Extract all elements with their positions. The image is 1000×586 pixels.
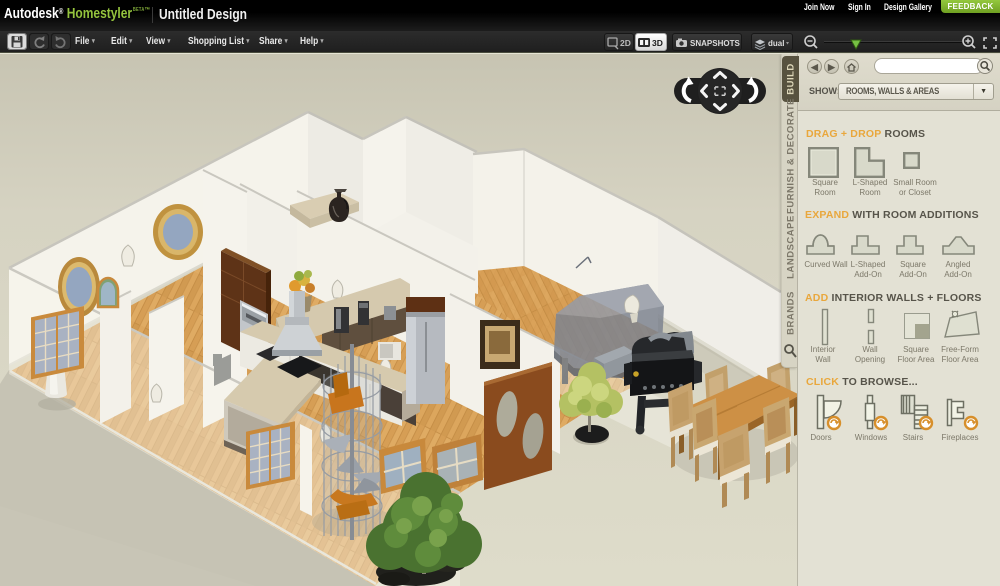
- svg-text:dual: dual: [768, 39, 784, 48]
- svg-text:3D: 3D: [652, 38, 663, 48]
- svg-text:SNAPSHOTS: SNAPSHOTS: [690, 39, 740, 48]
- svg-text:2D: 2D: [620, 38, 631, 48]
